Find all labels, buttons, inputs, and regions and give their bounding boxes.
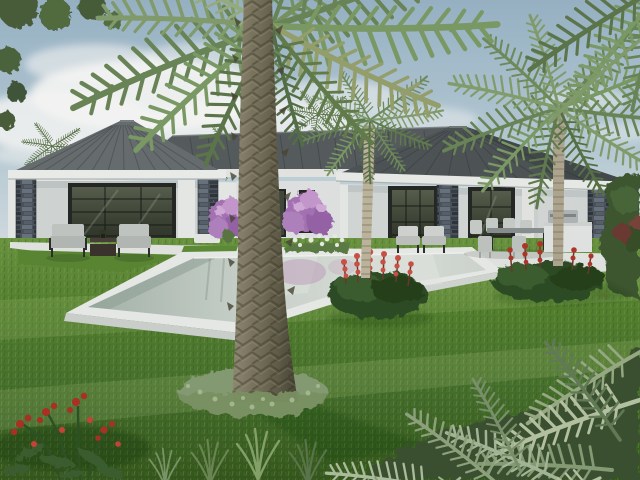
rendering-canvas (0, 0, 640, 480)
vignette (0, 0, 640, 480)
scene-svg (0, 0, 640, 480)
